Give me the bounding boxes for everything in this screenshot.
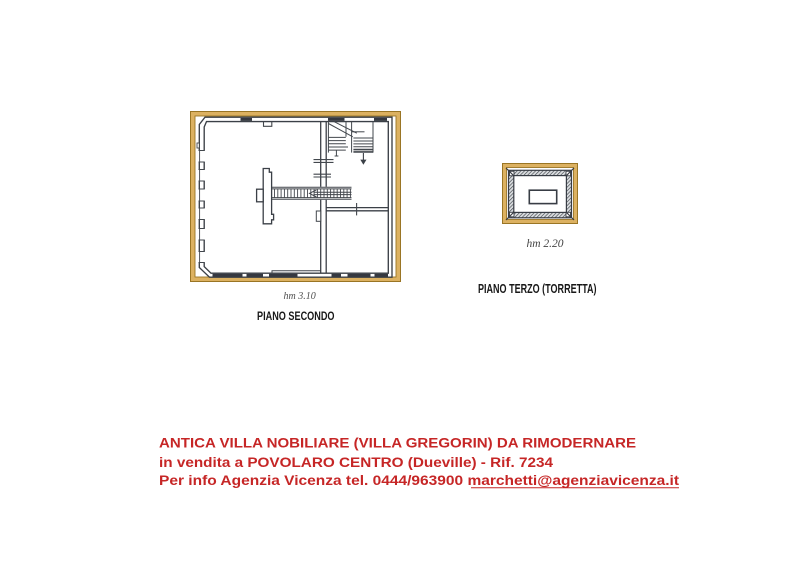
svg-text:in vendita a POVOLARO CENTRO (: in vendita a POVOLARO CENTRO (Dueville) … <box>159 455 554 470</box>
svg-text:PIANO SECONDO: PIANO SECONDO <box>257 311 335 323</box>
svg-text:PIANO TERZO (TORRETTA): PIANO TERZO (TORRETTA) <box>478 282 597 296</box>
svg-text:ANTICA VILLA NOBILIARE (VILLA: ANTICA VILLA NOBILIARE (VILLA GREGORIN) … <box>159 435 636 450</box>
svg-text:Per info Agenzia Vicenza tel.: Per info Agenzia Vicenza tel. 0444/96390… <box>159 473 680 488</box>
svg-text:hm 3.10: hm 3.10 <box>284 291 316 302</box>
svg-text:hm 2.20: hm 2.20 <box>527 238 564 250</box>
